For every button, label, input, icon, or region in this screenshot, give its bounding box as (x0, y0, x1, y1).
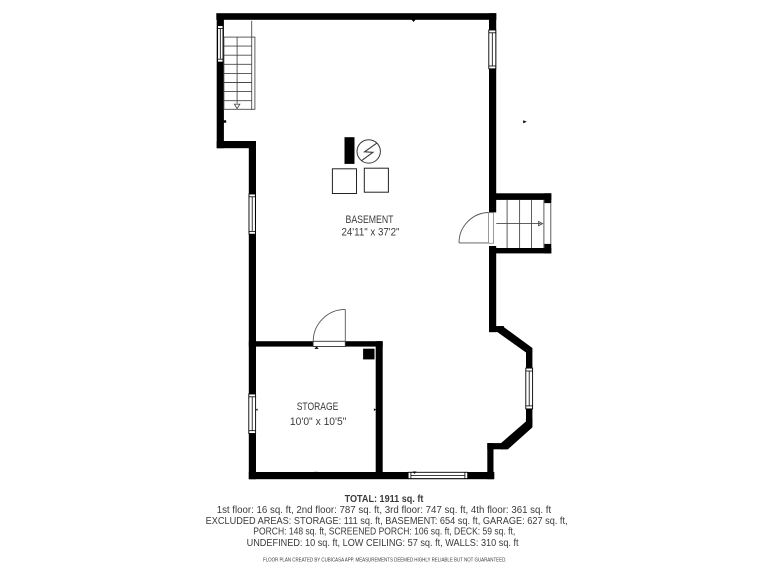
svg-text:TOTAL: 1911 sq. ft: TOTAL: 1911 sq. ft (345, 494, 424, 505)
svg-text:24'11" x 37'2": 24'11" x 37'2" (342, 227, 400, 239)
svg-text:UNDEFINED: 10 sq. ft, LOW CEIL: UNDEFINED: 10 sq. ft, LOW CEILING: 57 sq… (247, 538, 519, 549)
svg-text:1st floor: 16 sq. ft, 2nd floo: 1st floor: 16 sq. ft, 2nd floor: 787 sq.… (217, 505, 552, 516)
svg-text:FLOOR PLAN CREATED BY CUBICASA: FLOOR PLAN CREATED BY CUBICASA APP. MEAS… (263, 557, 507, 563)
svg-text:STORAGE: STORAGE (297, 401, 339, 413)
svg-text:PORCH: 148 sq. ft, SCREENED PO: PORCH: 148 sq. ft, SCREENED PORCH: 106 s… (253, 527, 515, 538)
svg-text:BASEMENT: BASEMENT (346, 214, 394, 226)
svg-text:10'0" x 10'5": 10'0" x 10'5" (290, 416, 347, 428)
svg-text:EXCLUDED AREAS: STORAGE: 111 s: EXCLUDED AREAS: STORAGE: 111 sq. ft, BAS… (206, 516, 568, 527)
